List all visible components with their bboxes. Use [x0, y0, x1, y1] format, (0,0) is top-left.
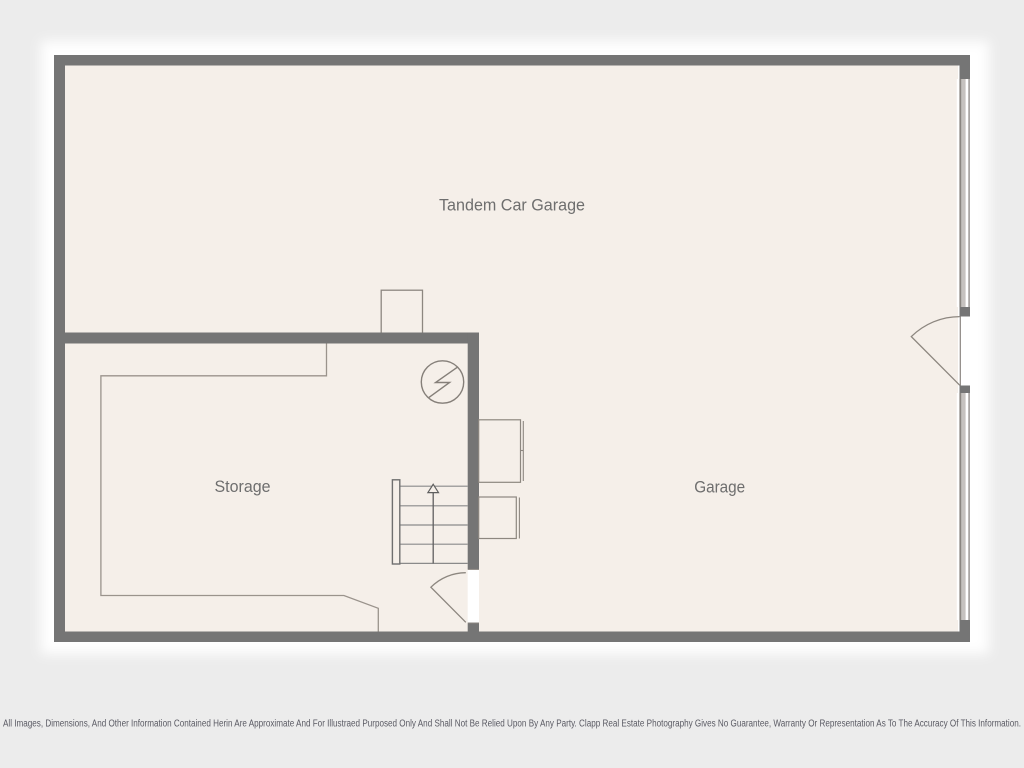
svg-text:Tandem Car Garage: Tandem Car Garage [439, 196, 585, 215]
svg-text:Garage: Garage [694, 478, 745, 497]
svg-text:Storage: Storage [215, 477, 271, 496]
svg-text:All Images, Dimensions, And Ot: All Images, Dimensions, And Other Inform… [3, 719, 1021, 730]
